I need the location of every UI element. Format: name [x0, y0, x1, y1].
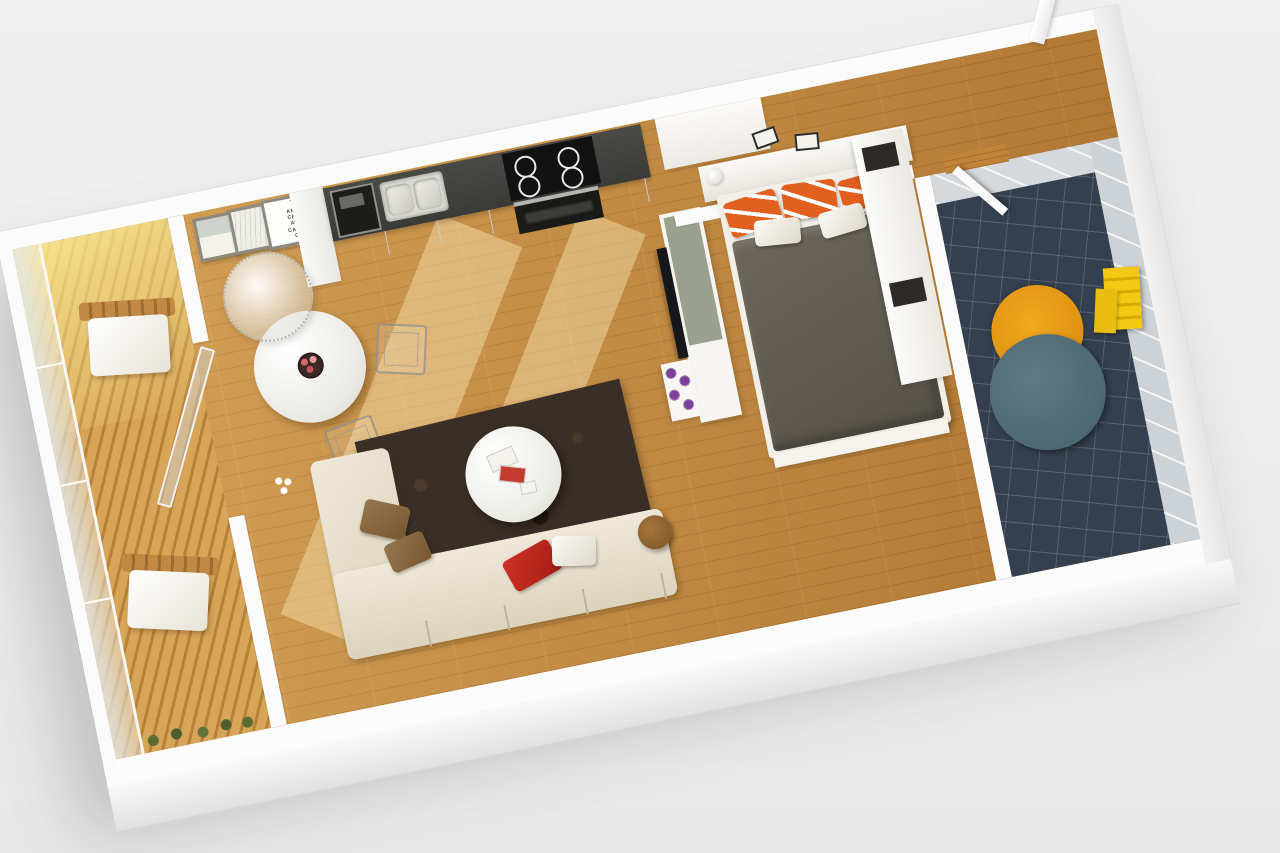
sink-basin: [384, 182, 415, 217]
fruit: [300, 358, 308, 366]
white-pillow: [552, 535, 597, 566]
fruit: [309, 355, 317, 363]
burner: [516, 173, 542, 199]
wardrobe-open-shelf: [861, 142, 899, 172]
magazine: [499, 465, 527, 484]
wire-chair-1: [375, 323, 427, 375]
wardrobe-open-shelf: [889, 277, 927, 307]
sink-basin: [412, 176, 443, 211]
chair-cushion: [88, 314, 171, 377]
floor-plan-scene: ♛ KEEP CALM AND CARRY ON: [0, 0, 1280, 853]
open-entry-door: [1029, 0, 1065, 45]
chair-cushion: [127, 570, 209, 631]
burner: [560, 165, 586, 191]
wall-frame: [794, 132, 820, 151]
plants: [140, 710, 261, 752]
lounge-chair-lower: [119, 553, 218, 635]
white-bed-pillow: [753, 217, 801, 247]
apartment-outer-walls: ♛ KEEP CALM AND CARRY ON: [0, 4, 1231, 787]
lounge-chair-upper: [79, 297, 180, 381]
railing-rail: [84, 597, 110, 604]
flower-vase: [271, 470, 298, 500]
railing-rail: [37, 362, 63, 369]
magazine: [519, 480, 537, 495]
chair-seat-outline: [384, 331, 419, 366]
fruit: [306, 365, 314, 373]
railing-rail: [60, 480, 86, 487]
fruit-bowl: [295, 350, 326, 381]
coffee-machine-display: [339, 193, 365, 210]
wood-floor: ♛ KEEP CALM AND CARRY ON: [13, 28, 1204, 759]
apartment-rotated-group: ♛ KEEP CALM AND CARRY ON: [0, 0, 1265, 840]
oven-window: [524, 199, 595, 225]
coffee-machine: [329, 183, 382, 239]
yellow-towel-small: [1094, 288, 1118, 333]
